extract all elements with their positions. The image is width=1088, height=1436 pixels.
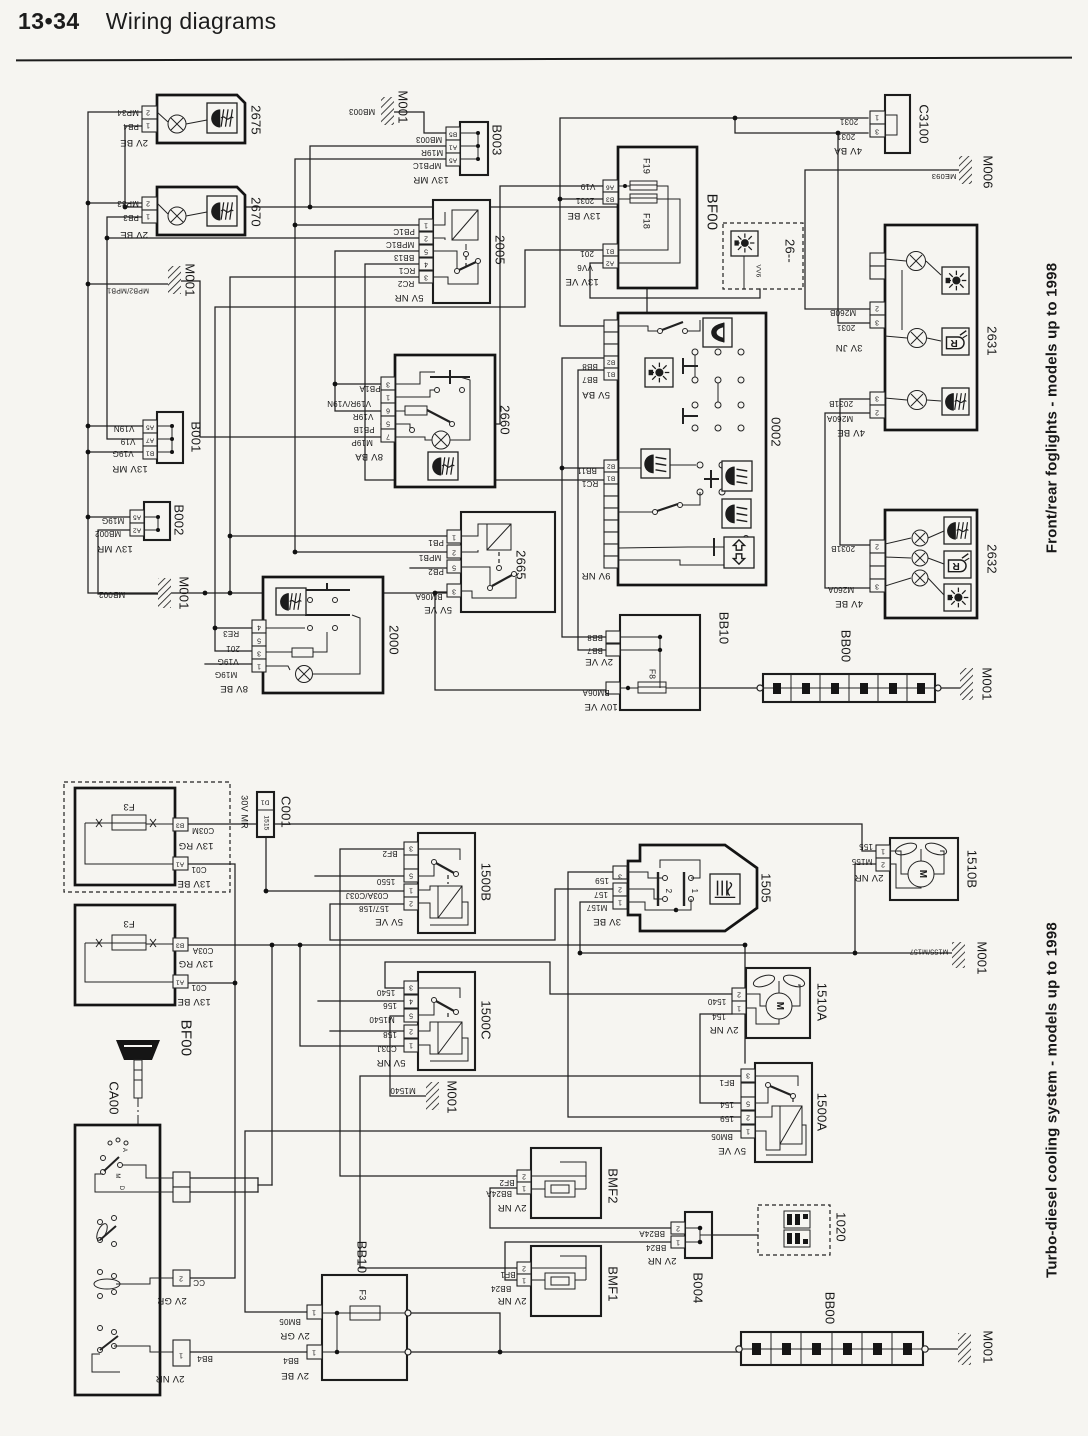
component-1500c-relay	[404, 972, 475, 1070]
ground-m001-b002	[158, 578, 171, 608]
component-fusebox-dashed	[64, 782, 230, 892]
component-26-instrument-lamp	[723, 223, 803, 289]
component-2632-rear-lamp-cluster	[870, 510, 977, 618]
component-fusebox-solid	[75, 905, 188, 1005]
component-1020-diagnostic	[758, 1205, 830, 1255]
component-bb00-top-earth-strip	[757, 674, 941, 702]
component-0002-stalk-switch	[604, 313, 766, 585]
component-2000-lighting-switch	[252, 577, 383, 693]
component-b001-connector	[143, 412, 183, 463]
component-2005-relay	[419, 200, 490, 303]
component-2665-relay	[447, 512, 555, 612]
component-bb00-bottom-earth-strip	[736, 1332, 928, 1365]
component-bmf1-maxi-fuse	[517, 1246, 601, 1316]
component-b002-connector	[130, 502, 170, 540]
wiring-diagram-canvas	[0, 0, 1088, 1436]
component-c001-connector	[257, 792, 274, 837]
component-c3100-connector	[870, 95, 910, 153]
ground-m001-bb00-bottom	[958, 1333, 971, 1365]
manual-page: { "page": {"header_number": "13•34", "he…	[0, 0, 1088, 1436]
component-bf00-fusebox	[603, 147, 697, 288]
component-ca00-ignition-switch	[75, 1040, 190, 1395]
component-1510a-fan-motor	[732, 968, 810, 1038]
ground-m006	[959, 156, 972, 184]
component-1500a-relay	[741, 1063, 812, 1162]
component-bb10-top-fusebox	[606, 615, 700, 710]
component-2631-rear-lamp-cluster	[870, 225, 977, 430]
ground-m001-top-left	[168, 266, 181, 294]
component-1505-thermo-switch	[613, 845, 757, 931]
component-b003-connector	[446, 122, 488, 175]
ground-m001-bb00-top	[960, 668, 973, 700]
component-bb10-bottom-fusebox	[307, 1275, 411, 1380]
component-1500b-relay	[404, 833, 475, 933]
ignition-key-icon	[116, 1040, 160, 1098]
ground-m001-b003	[381, 97, 394, 125]
component-bmf2-maxi-fuse	[517, 1148, 601, 1218]
component-2660-foglight-switch	[381, 355, 495, 487]
component-1510b-fan-motor	[876, 838, 958, 900]
ground-m001-m1540	[426, 1082, 439, 1110]
ground-m001-m155-m157	[952, 942, 965, 968]
component-2670-rear-foglamp	[142, 187, 245, 235]
component-b004-connector	[671, 1212, 712, 1258]
component-2675-rear-foglamp	[142, 95, 245, 143]
